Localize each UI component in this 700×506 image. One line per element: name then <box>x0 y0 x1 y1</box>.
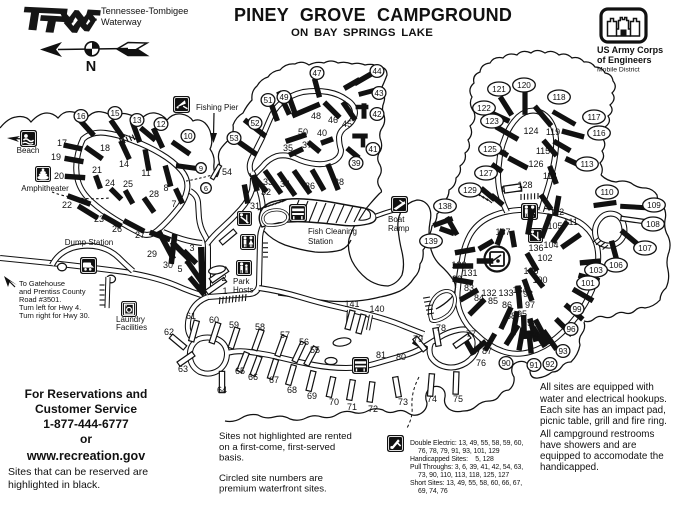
svg-text:57: 57 <box>280 330 290 340</box>
svg-text:Customer Service: Customer Service <box>35 402 137 416</box>
svg-text:41: 41 <box>368 145 378 154</box>
svg-text:15: 15 <box>110 109 120 118</box>
svg-text:141: 141 <box>344 299 359 309</box>
svg-text:90: 90 <box>501 359 511 368</box>
svg-text:31: 31 <box>250 201 260 211</box>
svg-text:21: 21 <box>92 165 102 175</box>
svg-text:22: 22 <box>62 200 72 210</box>
svg-text:water and electrical hookups.: water and electrical hookups. <box>539 394 667 405</box>
svg-text:55: 55 <box>310 345 320 355</box>
svg-text:12: 12 <box>156 120 166 129</box>
svg-text:13: 13 <box>132 116 142 125</box>
svg-text:50: 50 <box>298 127 308 137</box>
svg-text:42: 42 <box>372 110 382 119</box>
svg-text:49: 49 <box>279 93 289 102</box>
svg-text:136: 136 <box>528 243 543 253</box>
svg-text:35: 35 <box>283 143 293 153</box>
svg-text:Sites that can be reserved are: Sites that can be reserved are <box>8 466 148 478</box>
svg-text:67: 67 <box>269 375 279 385</box>
svg-text:101: 101 <box>581 279 595 288</box>
svg-text:110: 110 <box>600 188 613 197</box>
svg-text:US Army Corps: US Army Corps <box>597 45 663 55</box>
svg-text:equipped to accomodate the: equipped to accomodate the <box>540 451 664 462</box>
svg-text:75: 75 <box>453 394 463 404</box>
svg-text:39: 39 <box>351 159 361 168</box>
svg-text:7: 7 <box>171 199 176 209</box>
svg-text:2: 2 <box>221 273 226 283</box>
svg-text:1: 1 <box>222 286 227 296</box>
svg-text:63: 63 <box>178 364 188 374</box>
svg-text:73, 90, 110, 113, 118, 125, 12: 73, 90, 110, 113, 118, 125, 127 <box>418 472 509 479</box>
svg-text:8: 8 <box>163 183 168 193</box>
svg-text:100: 100 <box>532 275 547 285</box>
svg-text:www.recreation.gov: www.recreation.gov <box>26 449 145 463</box>
svg-text:5: 5 <box>177 264 182 274</box>
svg-text:Dump Station: Dump Station <box>65 238 113 247</box>
svg-text:73: 73 <box>398 397 408 407</box>
svg-text:106: 106 <box>609 261 623 270</box>
svg-text:Short Sites: 13, 49, 55, 58, 6: Short Sites: 13, 49, 55, 58, 60, 66, 67, <box>410 480 522 487</box>
svg-text:111: 111 <box>564 217 578 227</box>
svg-text:79: 79 <box>413 334 423 344</box>
svg-text:120: 120 <box>517 81 531 90</box>
svg-text:28: 28 <box>149 189 159 199</box>
svg-text:115: 115 <box>536 146 550 156</box>
svg-text:Sites not highlighted are rent: Sites not highlighted are rented <box>219 431 352 442</box>
svg-text:43: 43 <box>374 89 384 98</box>
svg-text:81: 81 <box>376 350 386 360</box>
svg-text:124: 124 <box>523 126 538 136</box>
svg-text:87: 87 <box>482 346 492 356</box>
svg-text:104: 104 <box>543 240 558 250</box>
svg-text:19: 19 <box>51 152 61 162</box>
svg-text:38: 38 <box>334 177 344 187</box>
svg-text:of Engineers: of Engineers <box>597 55 652 65</box>
svg-text:Beach: Beach <box>17 146 40 155</box>
svg-text:98: 98 <box>523 289 533 299</box>
svg-text:117: 117 <box>587 113 600 122</box>
svg-text:11: 11 <box>141 168 150 178</box>
svg-text:92: 92 <box>545 360 555 369</box>
svg-text:54: 54 <box>222 167 232 177</box>
svg-text:Hosts: Hosts <box>233 286 253 295</box>
svg-text:60: 60 <box>209 315 219 325</box>
svg-text:103: 103 <box>589 266 603 275</box>
svg-text:99: 99 <box>572 305 582 314</box>
svg-text:30: 30 <box>163 260 173 270</box>
svg-text:68: 68 <box>287 385 297 395</box>
svg-text:36: 36 <box>305 181 315 191</box>
svg-text:109: 109 <box>647 201 661 210</box>
svg-text:N: N <box>86 59 96 75</box>
svg-text:113: 113 <box>580 160 593 169</box>
svg-text:119: 119 <box>546 127 560 137</box>
svg-text:highlighted in black.: highlighted in black. <box>8 479 100 491</box>
svg-text:137: 137 <box>495 227 510 237</box>
svg-text:18: 18 <box>100 143 110 153</box>
svg-text:3: 3 <box>189 243 194 253</box>
svg-text:handicapped.: handicapped. <box>540 462 599 473</box>
svg-text:Tennessee-Tombigee: Tennessee-Tombigee <box>101 6 188 16</box>
svg-text:40: 40 <box>317 128 327 138</box>
svg-text:Turn right for Hwy 30.: Turn right for Hwy 30. <box>19 311 90 320</box>
svg-text:46: 46 <box>328 115 338 125</box>
svg-text:102: 102 <box>537 253 552 263</box>
svg-text:127: 127 <box>479 169 493 178</box>
svg-text:107: 107 <box>638 244 652 253</box>
svg-text:For Reservations and: For Reservations and <box>25 387 148 401</box>
svg-text:129: 129 <box>463 186 477 195</box>
svg-text:Pull Throughs: 3, 6, 39, 41, 4: Pull Throughs: 3, 6, 39, 41, 42, 54, 63, <box>410 464 523 471</box>
svg-text:70: 70 <box>329 397 339 407</box>
svg-text:26: 26 <box>112 224 122 234</box>
svg-text:10: 10 <box>183 132 193 141</box>
svg-text:121: 121 <box>492 85 506 94</box>
svg-text:52: 52 <box>250 119 260 128</box>
svg-text:94: 94 <box>529 330 539 340</box>
svg-text:37: 37 <box>302 140 312 150</box>
svg-text:139: 139 <box>424 237 438 246</box>
svg-text:65: 65 <box>235 366 245 376</box>
svg-text:Boat: Boat <box>388 215 405 224</box>
svg-text:32: 32 <box>261 187 271 197</box>
svg-text:61: 61 <box>186 311 196 321</box>
svg-text:85: 85 <box>488 296 498 306</box>
svg-text:62: 62 <box>164 327 174 337</box>
svg-text:34: 34 <box>280 179 290 189</box>
svg-text:108: 108 <box>646 220 660 229</box>
svg-text:78: 78 <box>436 323 446 333</box>
svg-text:Fish Cleaning: Fish Cleaning <box>308 227 357 236</box>
svg-text:126: 126 <box>528 159 543 169</box>
svg-text:93: 93 <box>558 347 568 356</box>
svg-text:88: 88 <box>506 311 516 321</box>
svg-text:44: 44 <box>372 67 382 76</box>
svg-text:116: 116 <box>592 129 605 138</box>
svg-text:9: 9 <box>199 164 203 173</box>
svg-text:1-877-444-6777: 1-877-444-6777 <box>43 417 129 431</box>
svg-text:29: 29 <box>147 249 157 259</box>
svg-text:4: 4 <box>184 257 189 267</box>
svg-text:Waterway: Waterway <box>101 17 142 27</box>
svg-text:premium waterfront sites.: premium waterfront sites. <box>219 484 327 495</box>
svg-text:All campground restrooms: All campground restrooms <box>540 429 654 440</box>
svg-text:24: 24 <box>105 178 115 188</box>
svg-text:138: 138 <box>438 202 452 211</box>
svg-text:27: 27 <box>135 230 145 240</box>
svg-text:140: 140 <box>369 304 384 314</box>
svg-text:or: or <box>80 432 92 446</box>
svg-text:114: 114 <box>543 171 557 181</box>
svg-text:47: 47 <box>312 69 322 78</box>
svg-text:77: 77 <box>466 329 476 339</box>
svg-text:Ramp: Ramp <box>388 224 410 233</box>
svg-text:76: 76 <box>476 358 486 368</box>
svg-text:83: 83 <box>464 283 474 293</box>
svg-text:128: 128 <box>517 180 532 190</box>
svg-text:71: 71 <box>347 402 357 412</box>
svg-text:Circled site numbers are: Circled site numbers are <box>219 473 323 484</box>
svg-text:Station: Station <box>308 237 333 246</box>
svg-text:picnic table, grill and fire r: picnic table, grill and fire ring. <box>540 416 667 427</box>
svg-text:96: 96 <box>566 325 576 334</box>
svg-text:123: 123 <box>485 117 499 126</box>
svg-text:Handicapped Sites: 5, 128: Handicapped Sites: 5, 128 <box>410 456 494 463</box>
svg-text:64: 64 <box>217 385 227 395</box>
svg-text:86: 86 <box>502 300 512 310</box>
svg-text:69: 69 <box>307 391 317 401</box>
svg-text:on a first-come, first-served: on a first-come, first-served <box>219 442 335 453</box>
svg-text:Each site has an impact pad,: Each site has an impact pad, <box>540 405 666 416</box>
svg-text:72: 72 <box>368 404 378 414</box>
svg-text:20: 20 <box>54 171 64 181</box>
svg-text:Double Electric: 13, 49, 55, 5: Double Electric: 13, 49, 55, 58, 59, 60, <box>410 440 523 447</box>
svg-text:Fishing Pier: Fishing Pier <box>196 103 239 112</box>
svg-text:17: 17 <box>57 138 67 148</box>
svg-text:131: 131 <box>462 268 477 278</box>
svg-text:125: 125 <box>483 145 497 154</box>
svg-text:89: 89 <box>522 318 532 328</box>
svg-text:Amphitheater: Amphitheater <box>21 184 69 193</box>
svg-text:All sites are equipped with: All sites are equipped with <box>540 382 654 393</box>
svg-text:16: 16 <box>76 112 86 121</box>
svg-text:105: 105 <box>547 221 562 231</box>
svg-text:14: 14 <box>119 159 129 169</box>
svg-text:76, 78, 79, 91, 93, 101, 129: 76, 78, 79, 91, 93, 101, 129 <box>418 448 500 455</box>
svg-text:122: 122 <box>477 104 491 113</box>
svg-text:69, 74, 76: 69, 74, 76 <box>418 488 448 495</box>
svg-text:59: 59 <box>229 320 239 330</box>
svg-text:66: 66 <box>248 372 258 382</box>
svg-text:33: 33 <box>263 177 273 187</box>
svg-text:PINEY GROVE CAMPGROUND: PINEY GROVE CAMPGROUND <box>234 5 512 25</box>
svg-text:ON BAY SPRINGS LAKE: ON BAY SPRINGS LAKE <box>291 27 433 39</box>
svg-text:25: 25 <box>123 179 133 189</box>
svg-text:91: 91 <box>529 361 539 370</box>
svg-text:118: 118 <box>552 93 565 102</box>
svg-text:basis.: basis. <box>219 453 244 464</box>
svg-text:53: 53 <box>229 134 239 143</box>
svg-text:80: 80 <box>396 352 406 362</box>
svg-text:112: 112 <box>550 207 564 217</box>
svg-text:have showers and are: have showers and are <box>540 440 637 451</box>
svg-text:58: 58 <box>255 322 265 332</box>
svg-text:23: 23 <box>94 214 104 224</box>
svg-text:Facilities: Facilities <box>116 323 147 332</box>
svg-text:51: 51 <box>263 96 273 105</box>
svg-text:6: 6 <box>204 184 208 193</box>
svg-text:82: 82 <box>452 274 462 284</box>
svg-text:45: 45 <box>342 119 352 129</box>
svg-text:133: 133 <box>498 288 513 298</box>
svg-text:48: 48 <box>311 111 321 121</box>
svg-text:74: 74 <box>427 394 437 404</box>
svg-text:56: 56 <box>299 337 309 347</box>
